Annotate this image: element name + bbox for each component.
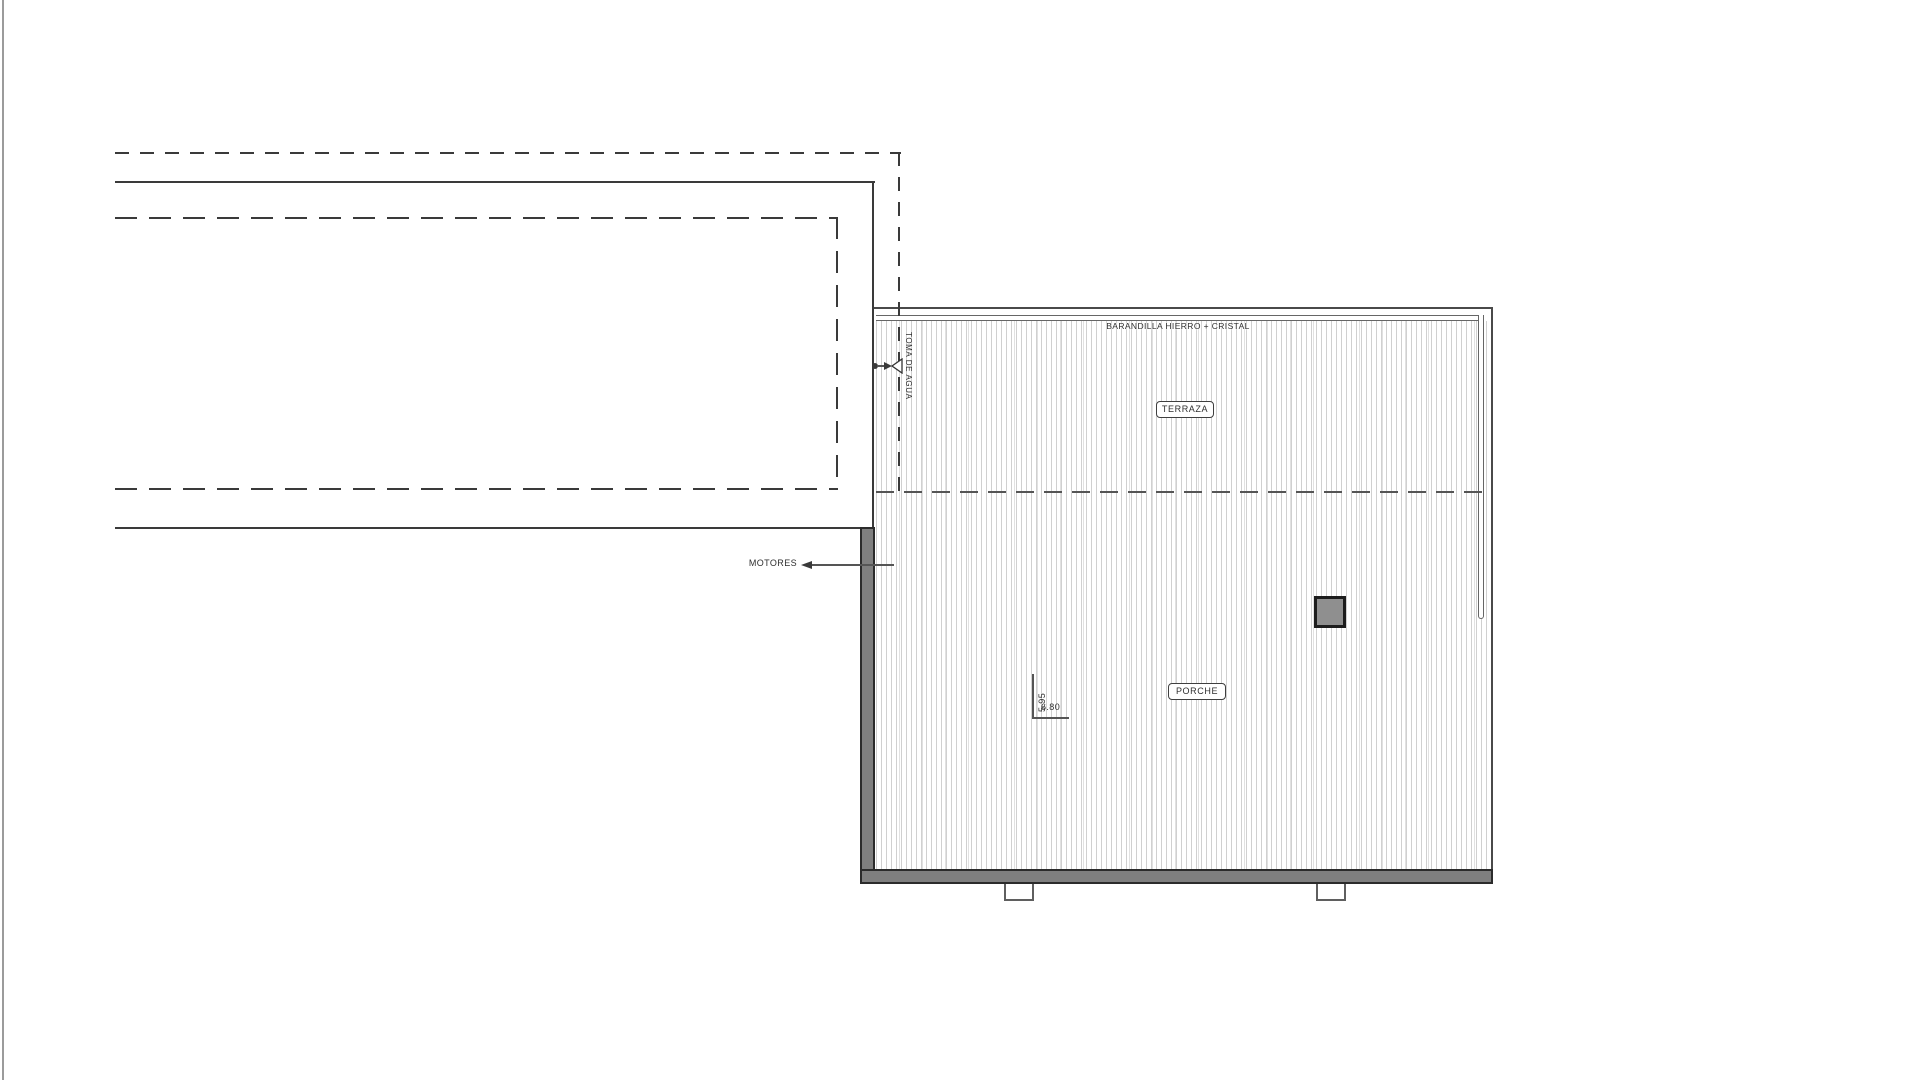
water-valve-icon	[890, 358, 903, 374]
porche-label: PORCHE	[1168, 683, 1226, 700]
roof-overhang-dashed-right	[898, 152, 900, 493]
building-wall-top	[115, 181, 875, 183]
inner-roof-dashed-top	[115, 217, 838, 219]
motores-leader-line	[812, 564, 894, 566]
terrace-outer-top-border	[874, 307, 1493, 309]
wall-left-thick	[860, 527, 875, 884]
dimension-width-value: 6.80	[1041, 702, 1060, 712]
inner-roof-dashed-right	[836, 217, 838, 490]
floor-plan-canvas: BARANDILLA HIERRO + CRISTAL TERRAZA PORC…	[0, 0, 1920, 1080]
column-pillar	[1314, 596, 1346, 628]
wall-bottom-thick	[860, 869, 1493, 884]
terrace-outer-right-border	[1491, 307, 1493, 884]
inner-roof-dashed-bottom	[115, 488, 838, 490]
roof-overhang-dashed-top	[115, 152, 901, 154]
barandilla-label: BARANDILLA HIERRO + CRISTAL	[1093, 321, 1263, 331]
building-wall-right	[872, 181, 874, 528]
toma-de-agua-label: TOMA DE AGUA	[904, 332, 913, 400]
dimension-line-horizontal	[1032, 717, 1069, 719]
overhang-dashed-across-deck	[876, 491, 1490, 493]
motores-arrowhead-icon	[801, 561, 812, 569]
terraza-label: TERRAZA	[1156, 401, 1214, 418]
railing-right	[1478, 315, 1484, 619]
motores-label: MOTORES	[715, 558, 797, 568]
dimension-line-vertical	[1032, 674, 1034, 719]
screen-edge-line	[2, 0, 4, 1080]
building-wall-bottom	[115, 527, 862, 529]
